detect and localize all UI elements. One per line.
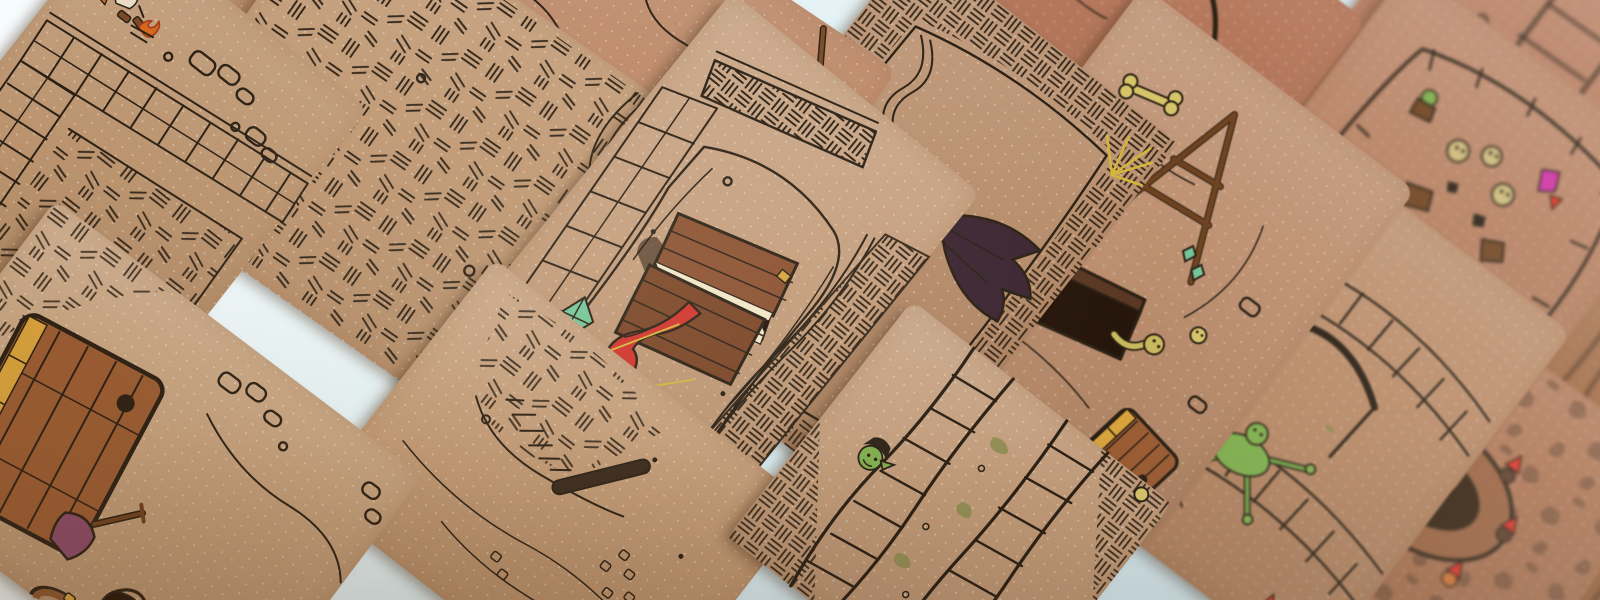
stones [205,364,401,526]
small-skull-icon [1187,324,1209,346]
small-goblin [1408,86,1446,125]
magenta-gem-icon [1530,163,1566,200]
goblin-head-icon [852,431,902,481]
photo-of-dungeon-tiles [0,0,1600,600]
rock-pile [152,31,303,165]
moss-patches [859,432,1022,600]
skull-pile [1438,124,1532,210]
barrel-rim-icon [31,575,102,600]
pebbles [484,488,654,600]
campfire-icon [128,10,163,45]
cook-pot-icon [93,579,156,600]
